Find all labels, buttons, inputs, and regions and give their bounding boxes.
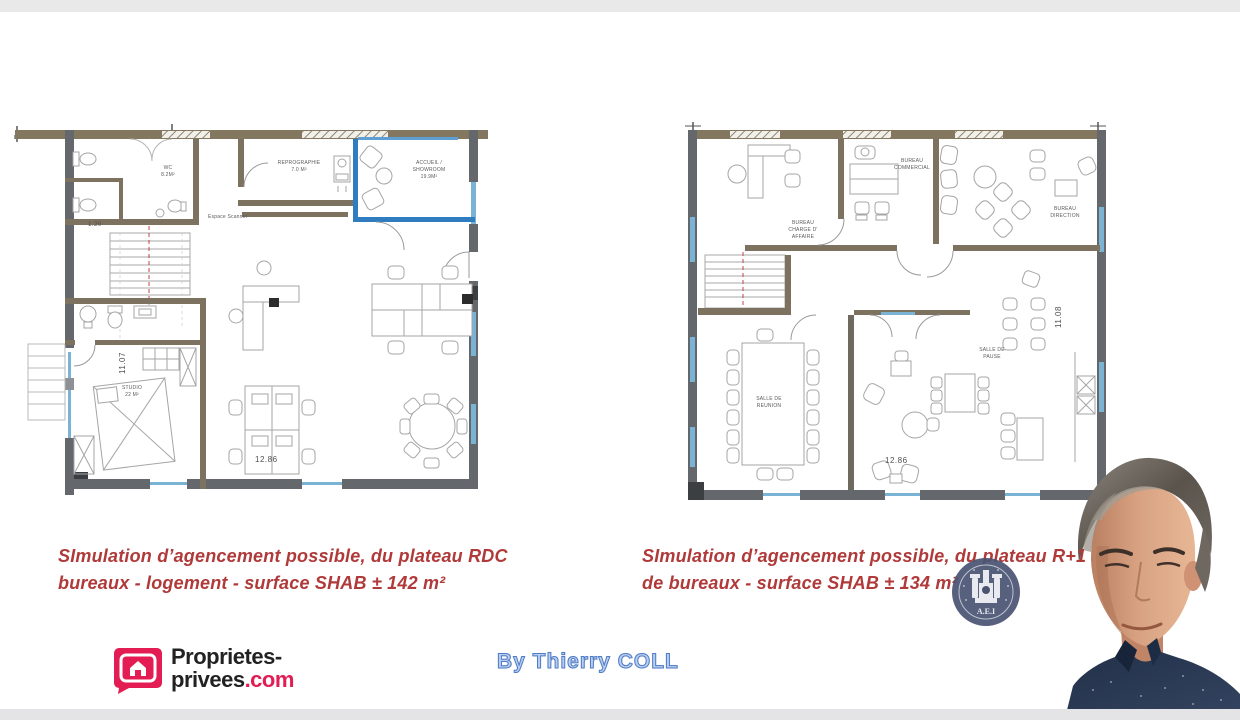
floor-plan-r1: BUREAU CHARGE D' AFFAIRE BUREAU COMMERCI… xyxy=(685,122,1121,506)
caption-rdc-line2: bureaux - logement - surface SHAB ± 142 … xyxy=(58,570,508,597)
room-label-bureau-commercial: BUREAU COMMERCIAL xyxy=(894,158,930,172)
logo-text-line1: Proprietes- xyxy=(171,645,294,668)
room-label-accueil-showroom: ACCUEIL / SHOWROOM 19.9M² xyxy=(413,160,446,181)
top-border-strip xyxy=(0,0,1240,12)
dim-horizontal-12-86-r1: 12.86 xyxy=(885,456,908,465)
room-label-bureau-direction: BUREAU DIRECTION xyxy=(1050,206,1079,220)
bottom-border-strip xyxy=(0,709,1240,720)
agency-stamp: A.E.I xyxy=(950,556,1022,628)
logo-text-line2-pink: .com xyxy=(245,667,294,692)
byline-author: By Thierry COLL xyxy=(497,650,679,674)
room-label-reprographie: REPROGRAPHIE7.0 M² xyxy=(278,160,321,174)
label-espace-scanner: Espace Scanner xyxy=(208,214,248,221)
dim-vertical-11-07: 11.07 xyxy=(118,352,127,374)
room-label-salle-de-pause: SALLE DE PAUSE xyxy=(979,347,1005,361)
dim-horizontal-12-86: 12.86 xyxy=(255,455,278,464)
stamp-seal-icon: A.E.I xyxy=(950,556,1022,628)
logo-house-bubble-icon xyxy=(113,645,163,695)
caption-rdc: SImulation d’agencement possible, du pla… xyxy=(58,543,508,597)
floor-plan-rdc: WC8.2M² REPROGRAPHIE7.0 M² ACCUEIL / SHO… xyxy=(12,116,498,502)
room-label-wc: WC8.2M² xyxy=(161,165,175,179)
stamp-text: A.E.I xyxy=(977,607,995,616)
dim-vertical-11-08: 11.08 xyxy=(1054,306,1063,328)
logo-text-line2-black: privees xyxy=(171,667,245,692)
room-label-studio: STUDIO22 M² xyxy=(122,385,142,399)
room-label-salle-de-reunion: SALLE DE REUNION xyxy=(756,396,782,410)
caption-rdc-line1: SImulation d’agencement possible, du pla… xyxy=(58,543,508,570)
proprietes-privees-logo: Proprietes- privees.com xyxy=(113,645,294,695)
room-label-bureau-charge-affaire: BUREAU CHARGE D' AFFAIRE xyxy=(788,220,817,241)
dim-stair-width: 1.20 xyxy=(88,222,102,228)
